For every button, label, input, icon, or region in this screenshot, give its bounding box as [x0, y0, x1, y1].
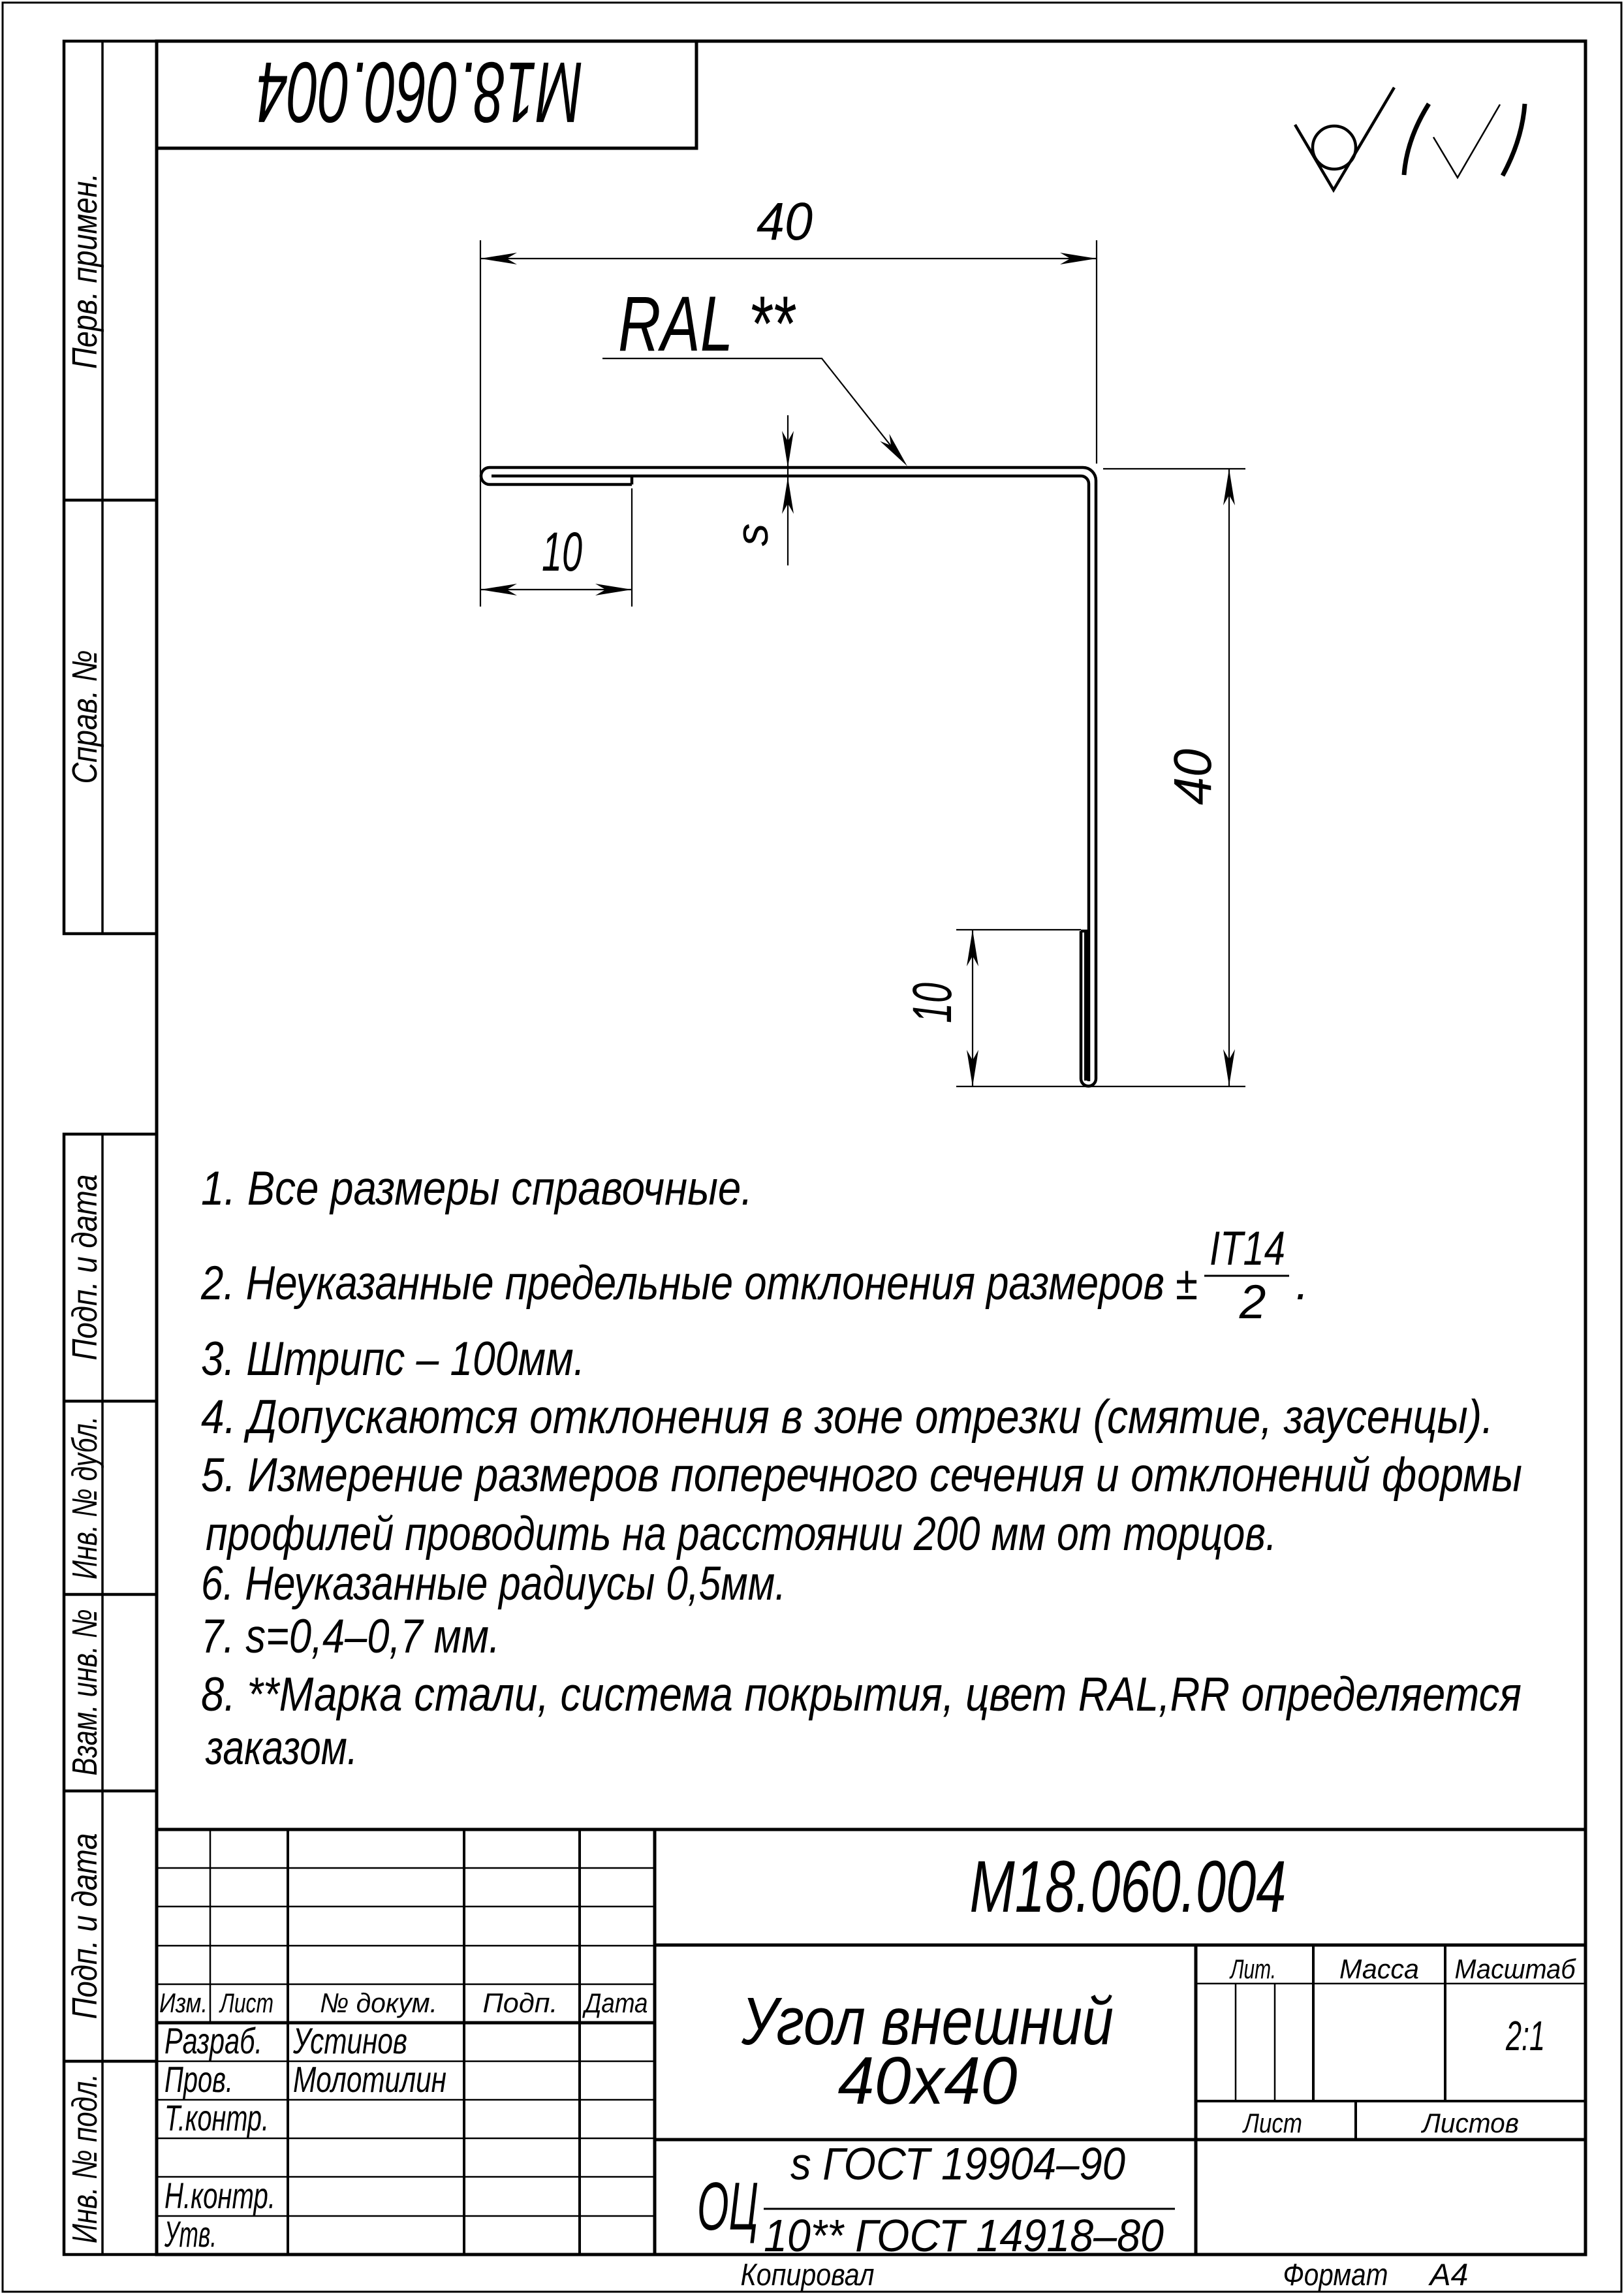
svg-text:8. **Марка стали, система пок: 8. **Марка стали, система покрытия, цвет… [201, 1668, 1522, 1721]
svg-text:40: 40 [757, 192, 813, 251]
svg-text:s ГОСТ 19904–90: s ГОСТ 19904–90 [790, 2138, 1125, 2189]
svg-text:s: s [726, 524, 777, 546]
svg-text:Перв. примен.: Перв. примен. [65, 173, 104, 369]
svg-text:Подп.: Подп. [483, 1987, 558, 2018]
svg-text:2:1: 2:1 [1505, 2012, 1545, 2059]
svg-text:№ докум.: № докум. [320, 1987, 437, 2018]
svg-text:40х40: 40х40 [838, 2043, 1018, 2118]
svg-text:RAL **: RAL ** [618, 280, 796, 368]
svg-text:Инв. № дубл.: Инв. № дубл. [65, 1416, 104, 1579]
svg-text:Лит.: Лит. [1229, 1954, 1276, 1984]
svg-text:Копировал: Копировал [741, 2257, 875, 2292]
svg-text:3. Штрипс – 100мм.: 3. Штрипс – 100мм. [201, 1333, 585, 1385]
svg-text:2: 2 [1239, 1276, 1266, 1329]
svg-text:7. s=0,4–0,7 мм.: 7. s=0,4–0,7 мм. [201, 1610, 500, 1663]
svg-text:заказом.: заказом. [205, 1722, 358, 1775]
svg-text:Инв. № подл.: Инв. № подл. [65, 2074, 104, 2243]
svg-text:Пров.: Пров. [164, 2059, 233, 2100]
svg-text:Формат: Формат [1283, 2257, 1388, 2292]
svg-text:10** ГОСТ 14918–80: 10** ГОСТ 14918–80 [764, 2210, 1164, 2261]
svg-text:IT14: IT14 [1210, 1222, 1285, 1275]
svg-text:Молотилин: Молотилин [293, 2059, 446, 2100]
svg-text:Лист: Лист [219, 1987, 273, 2018]
svg-text:Разраб.: Разраб. [164, 2020, 262, 2061]
svg-text:Листов: Листов [1420, 2108, 1519, 2138]
svg-text:Подп. и дата: Подп. и дата [65, 1175, 104, 1361]
svg-text:Масса: Масса [1339, 1954, 1419, 1984]
svg-text:5. Измерение размеров попереч: 5. Измерение размеров поперечного сечени… [201, 1449, 1522, 1502]
svg-text:40: 40 [1163, 749, 1223, 805]
svg-text:профилей проводить на расстоян: профилей проводить на расстоянии 200 мм … [206, 1508, 1277, 1560]
svg-text:Масштаб: Масштаб [1455, 1954, 1576, 1984]
svg-text:1. Все размеры справочные.: 1. Все размеры справочные. [201, 1162, 753, 1215]
svg-text:6. Неуказанные радиусы 0,5мм.: 6. Неуказанные радиусы 0,5мм. [201, 1557, 786, 1610]
svg-text:М18.060.004: М18.060.004 [257, 44, 583, 140]
svg-text:10: 10 [901, 983, 963, 1023]
svg-text:Устинов: Устинов [292, 2020, 407, 2061]
svg-text:Лист: Лист [1242, 2108, 1302, 2138]
svg-text:Н.контр.: Н.контр. [164, 2175, 275, 2216]
svg-text:ОЦ: ОЦ [697, 2169, 758, 2245]
svg-text:2. Неуказанные предельные отк: 2. Неуказанные предельные отклонения раз… [200, 1257, 1198, 1310]
svg-text:Утв.: Утв. [164, 2213, 217, 2255]
svg-text:Т.контр.: Т.контр. [164, 2097, 269, 2138]
svg-text:Взам. инв. №: Взам. инв. № [65, 1609, 104, 1776]
svg-text:А4: А4 [1428, 2257, 1468, 2292]
svg-text:Изм.: Изм. [159, 1987, 208, 2018]
svg-text:10: 10 [542, 521, 582, 582]
svg-text:Дата: Дата [582, 1987, 648, 2018]
svg-text:Справ. №: Справ. № [65, 650, 104, 784]
svg-text:4. Допускаются отклонения в з: 4. Допускаются отклонения в зоне отрезки… [201, 1391, 1493, 1444]
svg-text:М18.060.004: М18.060.004 [970, 1846, 1287, 1927]
svg-text:.: . [1296, 1257, 1309, 1310]
svg-text:Подп. и дата: Подп. и дата [65, 1833, 104, 2019]
